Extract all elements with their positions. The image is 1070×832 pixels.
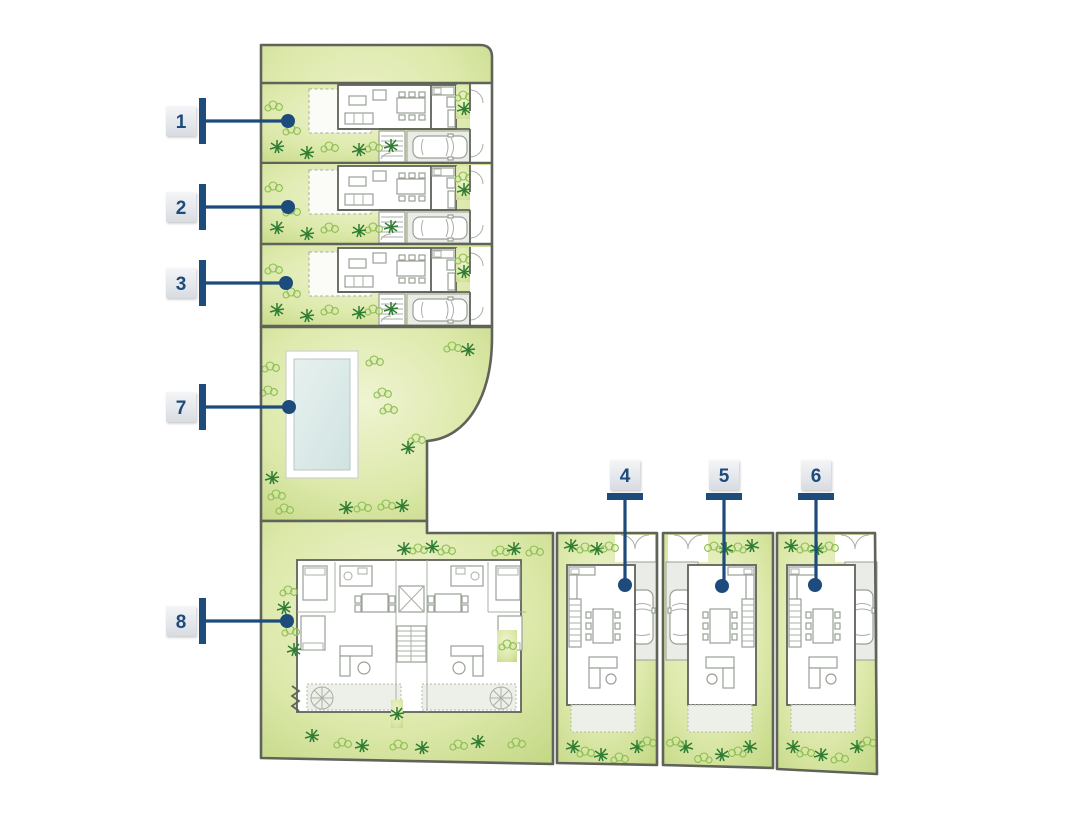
marker-6-dot xyxy=(808,578,822,592)
marker-8-number: 8 xyxy=(176,612,187,633)
townhouse-rows-section xyxy=(261,45,492,327)
site-plan-canvas: 1 2 3 7 8 4 xyxy=(0,0,1070,832)
marker-8-dot xyxy=(280,614,294,628)
townhouse-row-3 xyxy=(261,246,492,327)
marker-3-dot xyxy=(279,276,293,290)
marker-4-dot xyxy=(618,578,632,592)
swimming-pool xyxy=(294,359,350,470)
townhouse-row-2 xyxy=(261,164,492,245)
marker-6-number: 6 xyxy=(811,466,822,487)
apartment-plot-section xyxy=(261,521,553,764)
marker-5-number: 5 xyxy=(719,466,730,487)
marker-1-number: 1 xyxy=(176,112,187,133)
townhouse-columns-section xyxy=(557,533,877,774)
marker-1-dot xyxy=(281,114,295,128)
marker-2-number: 2 xyxy=(176,198,187,219)
marker-5-dot xyxy=(715,579,729,593)
pool-garden-section xyxy=(260,327,492,521)
marker-4-number: 4 xyxy=(620,466,631,487)
marker-7-number: 7 xyxy=(176,398,187,419)
site-plan-svg: 1 2 3 7 8 4 xyxy=(0,0,1070,832)
marker-3-number: 3 xyxy=(176,274,187,295)
marker-2-dot xyxy=(281,200,295,214)
marker-7-dot xyxy=(282,400,296,414)
townhouse-row-1 xyxy=(261,83,492,164)
apartment-building xyxy=(292,560,526,728)
